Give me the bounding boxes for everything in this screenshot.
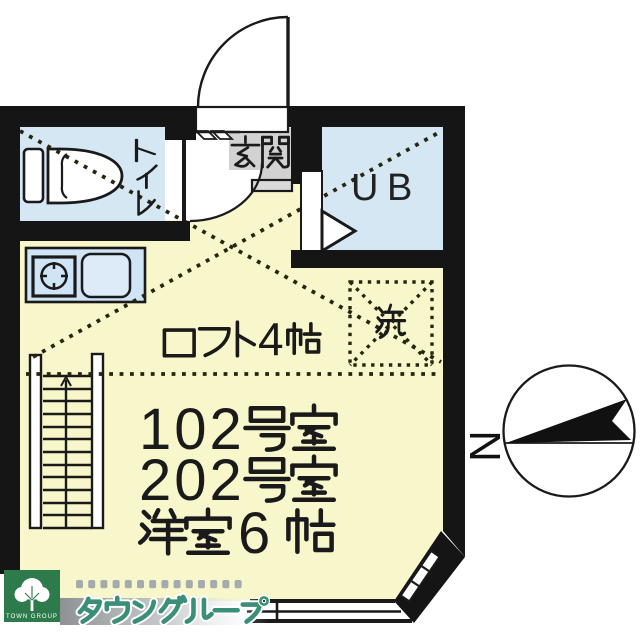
svg-text:202: 202 [139, 448, 245, 513]
svg-text:UB: UB [351, 167, 421, 209]
svg-text:4: 4 [258, 313, 284, 365]
svg-text:TOWN GROUP: TOWN GROUP [6, 614, 58, 620]
svg-text:N: N [461, 430, 510, 462]
svg-text:6: 6 [238, 501, 270, 566]
